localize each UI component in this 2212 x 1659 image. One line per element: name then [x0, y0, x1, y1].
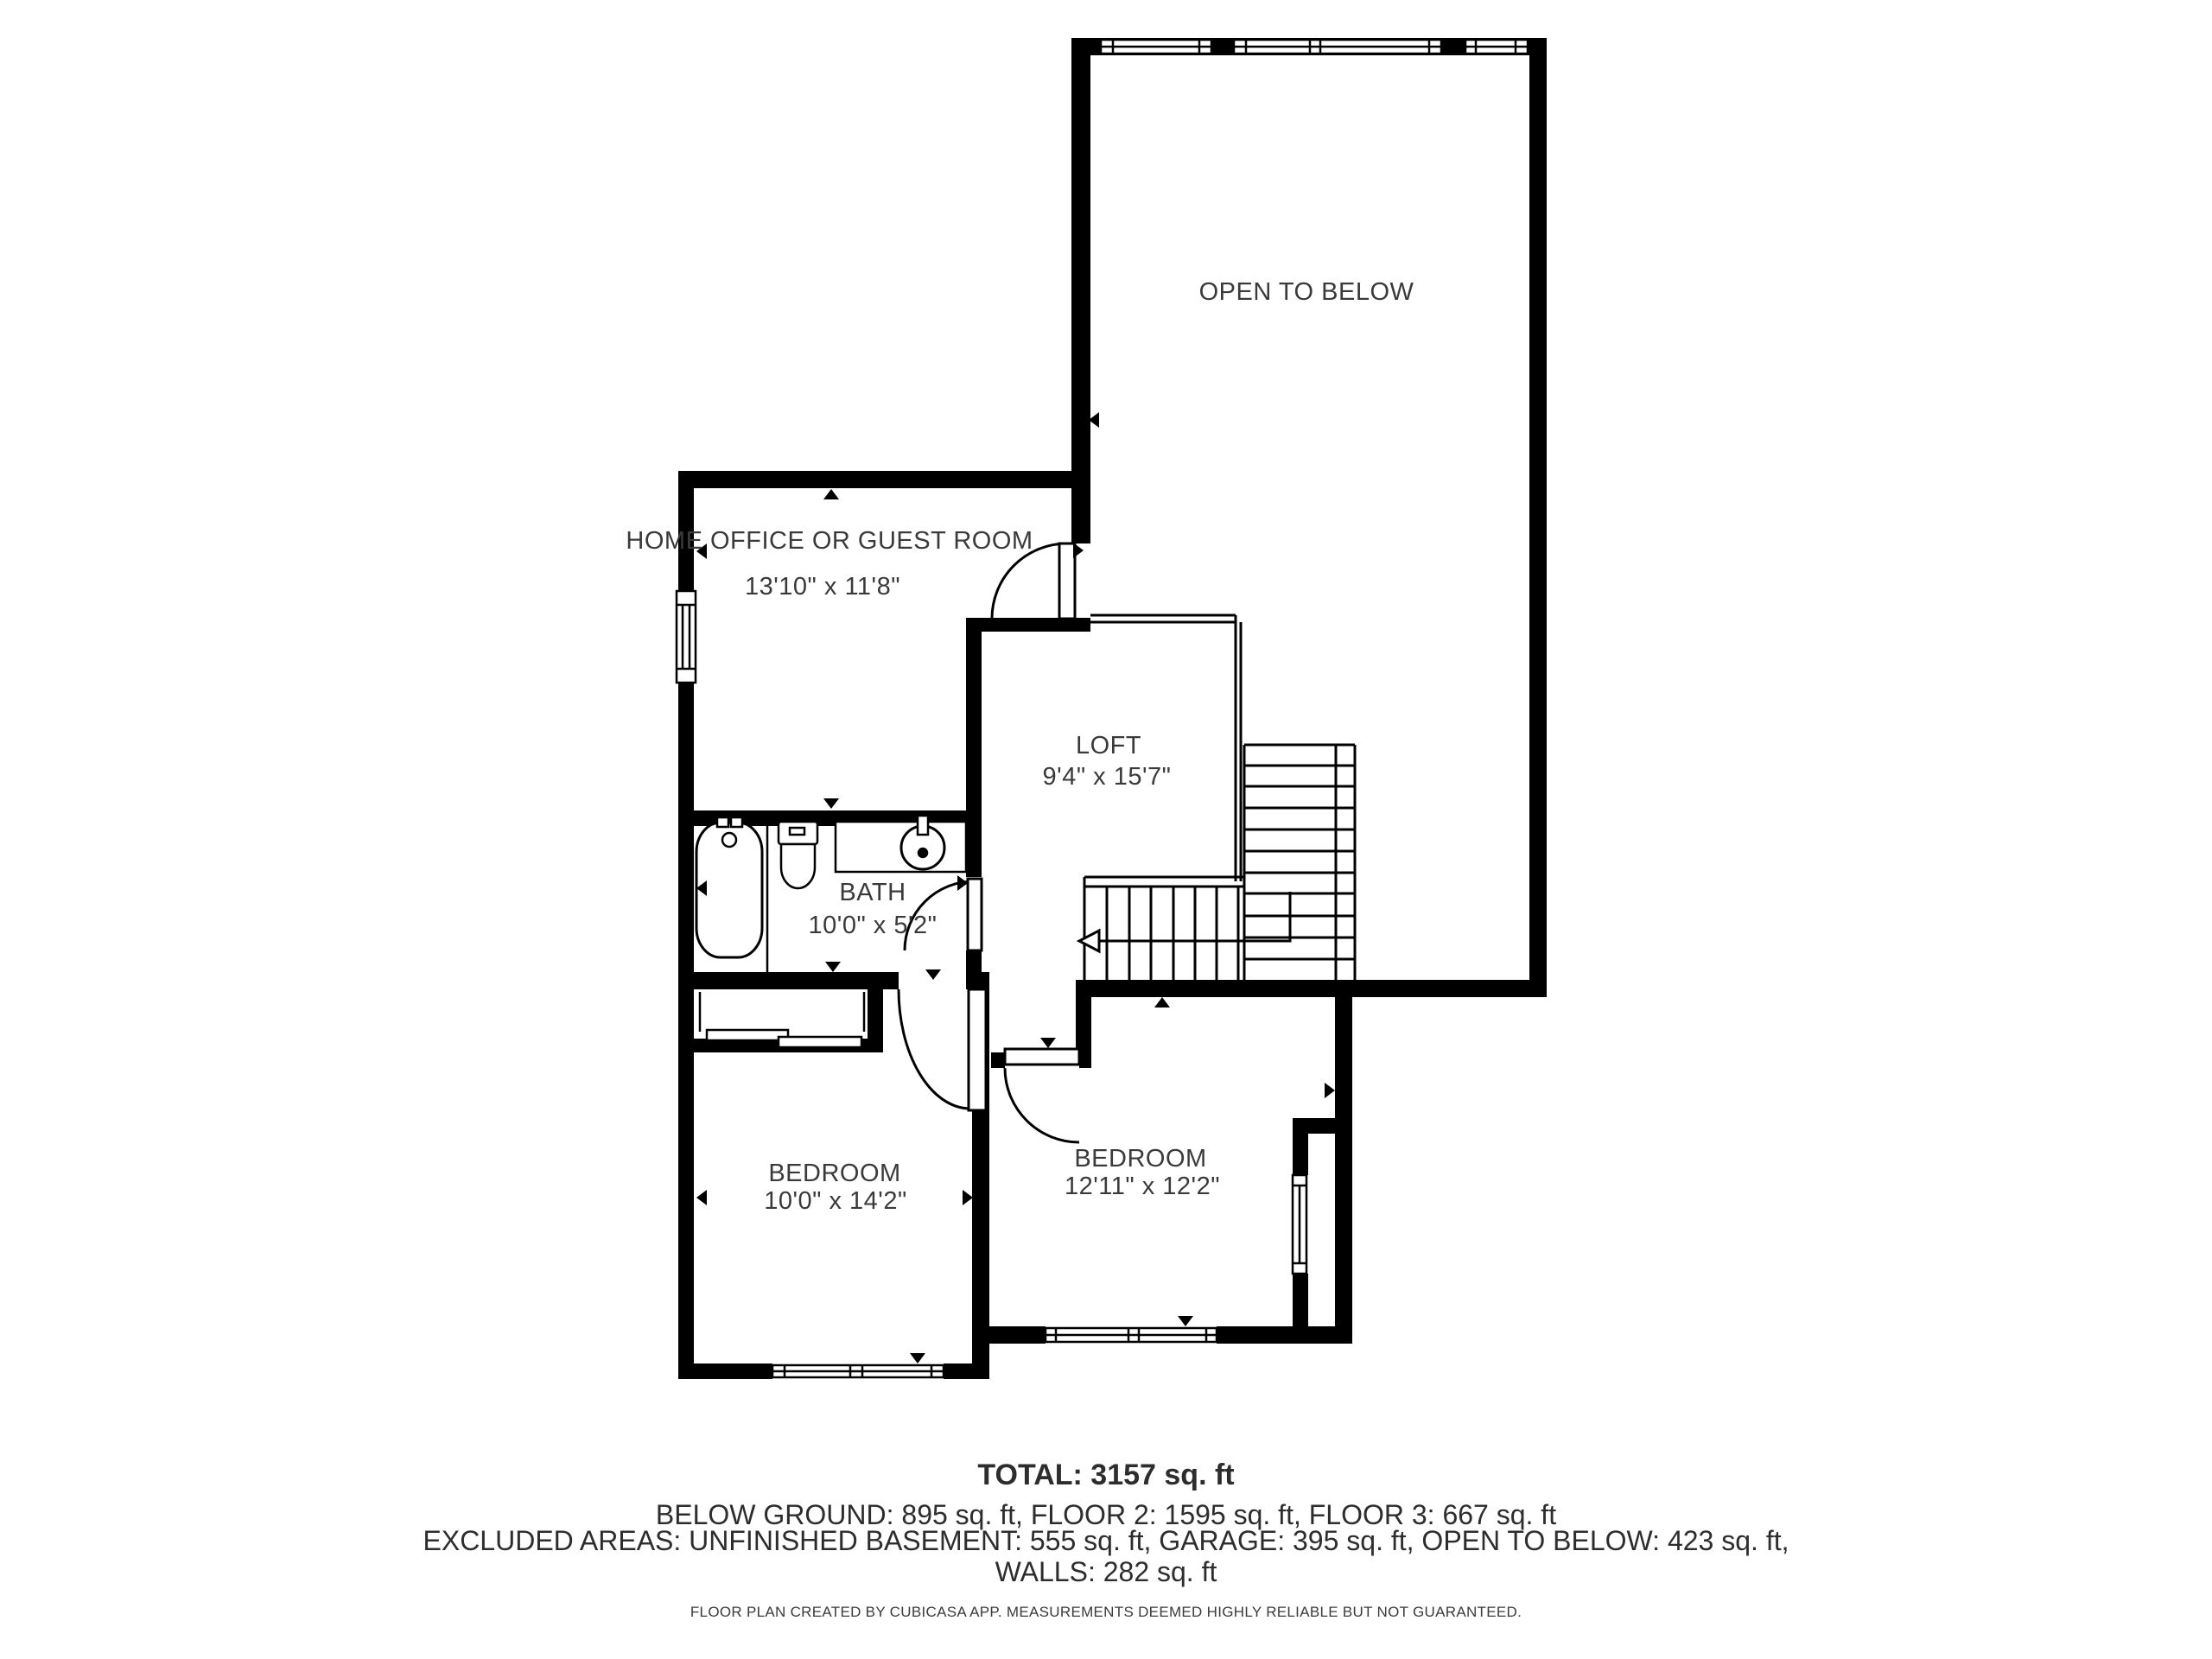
marker-lbed-bottom	[910, 1353, 925, 1363]
wall-loft-left-a	[966, 618, 982, 877]
dims-loft: 9'4" x 15'7"	[1043, 763, 1172, 791]
marker-lbed-right	[963, 1190, 973, 1205]
marker-rbed-bottom	[1178, 1316, 1193, 1326]
wall-ob-left	[1071, 38, 1090, 543]
window-top-c	[1465, 40, 1528, 54]
dims-home-office: 13'10" x 11'8"	[745, 573, 900, 601]
stair-direction-arrow	[1079, 892, 1290, 951]
wall-rbed-door-left	[991, 1052, 1005, 1068]
marker-office-top	[823, 489, 839, 499]
wall-ob-right	[1529, 38, 1547, 997]
footer-excluded-areas: EXCLUDED AREAS: UNFINISHED BASEMENT: 555…	[0, 1525, 2212, 1557]
window-lbed-bottom	[772, 1365, 944, 1377]
wall-rbed-bottom-right	[1217, 1326, 1352, 1344]
marker-hall-door	[925, 969, 941, 980]
marker-lbed-left	[696, 1190, 707, 1205]
wall-rbed-door-right	[1079, 1052, 1091, 1068]
wall-rbed-bottom-left	[972, 1326, 1046, 1344]
dims-bedroom-right: 12'11" x 12'2"	[1065, 1173, 1220, 1200]
window-rbed-bottom	[1046, 1328, 1217, 1342]
marker-rbed-top	[1154, 997, 1170, 1007]
label-bedroom-left: BEDROOM	[768, 1160, 900, 1187]
dims-bedroom-left: 10'0" x 14'2"	[764, 1187, 907, 1215]
floorplan-page: OPEN TO BELOW HOME OFFICE OR GUEST ROOM …	[0, 0, 2212, 1659]
marker-office-door	[1073, 543, 1084, 558]
marker-office-bottom	[823, 798, 839, 809]
marker-rbed-right	[1325, 1083, 1335, 1098]
wall-lbed-bottom-right	[944, 1363, 989, 1379]
wall-nook-top	[1293, 1118, 1335, 1134]
window-office-left	[677, 591, 696, 683]
sink-icon	[836, 816, 966, 872]
stair-flight-upper	[1244, 745, 1355, 980]
label-open-to-below: OPEN TO BELOW	[1199, 278, 1414, 306]
window-top-a	[1101, 40, 1211, 54]
label-home-office: HOME OFFICE OR GUEST ROOM	[626, 527, 1033, 555]
stair-flight-lower	[1107, 887, 1238, 980]
footer-walls-area: WALLS: 282 sq. ft	[0, 1556, 2212, 1588]
dims-bath: 10'0" x 5'2"	[809, 912, 938, 939]
footer-disclaimer: FLOOR PLAN CREATED BY CUBICASA APP. MEAS…	[0, 1604, 2212, 1621]
wall-corridor	[1076, 980, 1547, 997]
marker-bath-bottom	[825, 962, 841, 972]
wall-bath-bottom	[678, 972, 899, 989]
toilet-icon	[779, 822, 817, 888]
wall-lbed-bottom-left	[678, 1363, 772, 1379]
wall-connector	[1076, 997, 1091, 1052]
marker-bath-door	[957, 875, 968, 891]
label-loft: LOFT	[1076, 732, 1141, 760]
wall-left-lower	[678, 683, 694, 1379]
closet-sliding-doors	[700, 992, 864, 1047]
label-bath: BATH	[839, 879, 906, 906]
door-home-office	[992, 543, 1075, 619]
wall-office-top	[678, 471, 1090, 488]
door-right-bedroom	[1005, 1049, 1079, 1142]
label-bedroom-right: BEDROOM	[1074, 1145, 1206, 1173]
wall-nook-stub1	[1293, 1134, 1308, 1175]
window-rbed-right	[1293, 1175, 1306, 1274]
marker-rbed-door	[1040, 1038, 1056, 1048]
floor-plan-canvas: OPEN TO BELOW HOME OFFICE OR GUEST ROOM …	[0, 0, 2212, 1659]
footer-total: TOTAL: 3157 sq. ft	[0, 1459, 2212, 1492]
bath-fixtures	[696, 816, 966, 972]
window-top-b	[1234, 40, 1441, 54]
door-hall	[899, 989, 986, 1110]
staircase	[1079, 615, 1355, 980]
wall-rbed-right	[1335, 997, 1352, 1344]
wall-nook-stub2	[1293, 1274, 1308, 1330]
